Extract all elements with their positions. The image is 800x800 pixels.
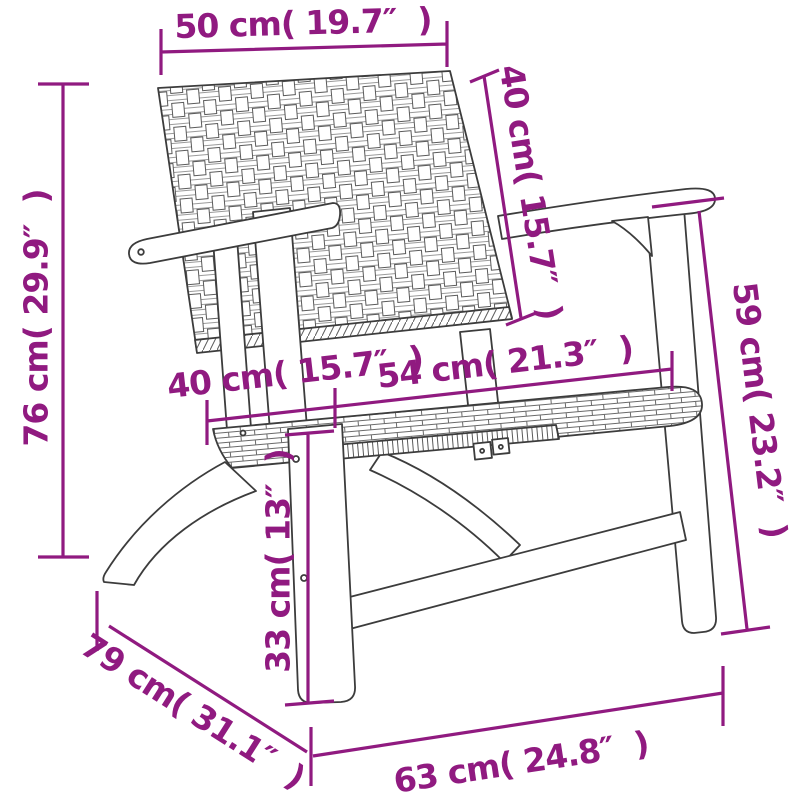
chair-front-leg	[288, 424, 355, 703]
product-dimension-diagram: 50 cm( 19.7″ ) 76 cm( 29.9″ ) 40 cm( 15.…	[0, 0, 800, 800]
dim-base-width-line	[313, 666, 723, 756]
dim-total-height-line	[38, 84, 89, 557]
chair-front-sled-leg	[103, 462, 256, 585]
chair-illustration	[103, 71, 716, 703]
dim-top-width-line	[161, 21, 447, 75]
chair-far-sled-leg	[370, 452, 520, 562]
chair-line-art-svg	[0, 0, 800, 800]
dim-overall-depth-line	[97, 591, 311, 786]
chair-armrest-bracket	[612, 217, 652, 256]
chair-crossbar	[338, 512, 686, 630]
